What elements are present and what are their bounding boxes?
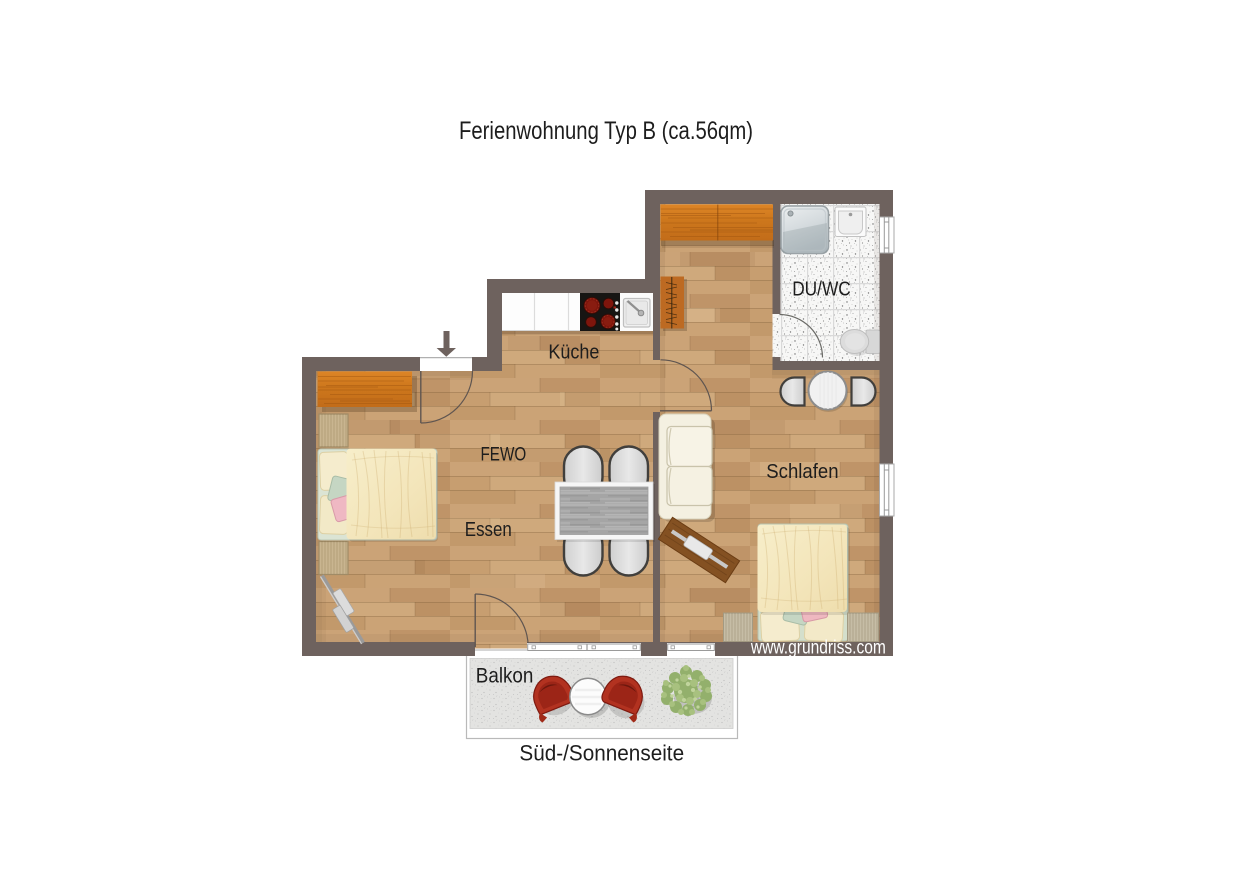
svg-text:Balkon: Balkon xyxy=(476,664,534,688)
svg-text:Süd-/Sonnenseite: Süd-/Sonnenseite xyxy=(519,741,684,766)
svg-text:Essen: Essen xyxy=(465,519,512,541)
svg-text:Schlafen: Schlafen xyxy=(766,461,838,483)
svg-text:Ferienwohnung Typ B (ca.56qm): Ferienwohnung Typ B (ca.56qm) xyxy=(459,117,753,145)
svg-text:Küche: Küche xyxy=(548,342,599,364)
svg-text:FEWO: FEWO xyxy=(481,444,527,466)
svg-text:www.grundriss.com: www.grundriss.com xyxy=(750,637,886,659)
svg-text:DU/WC: DU/WC xyxy=(792,279,851,301)
